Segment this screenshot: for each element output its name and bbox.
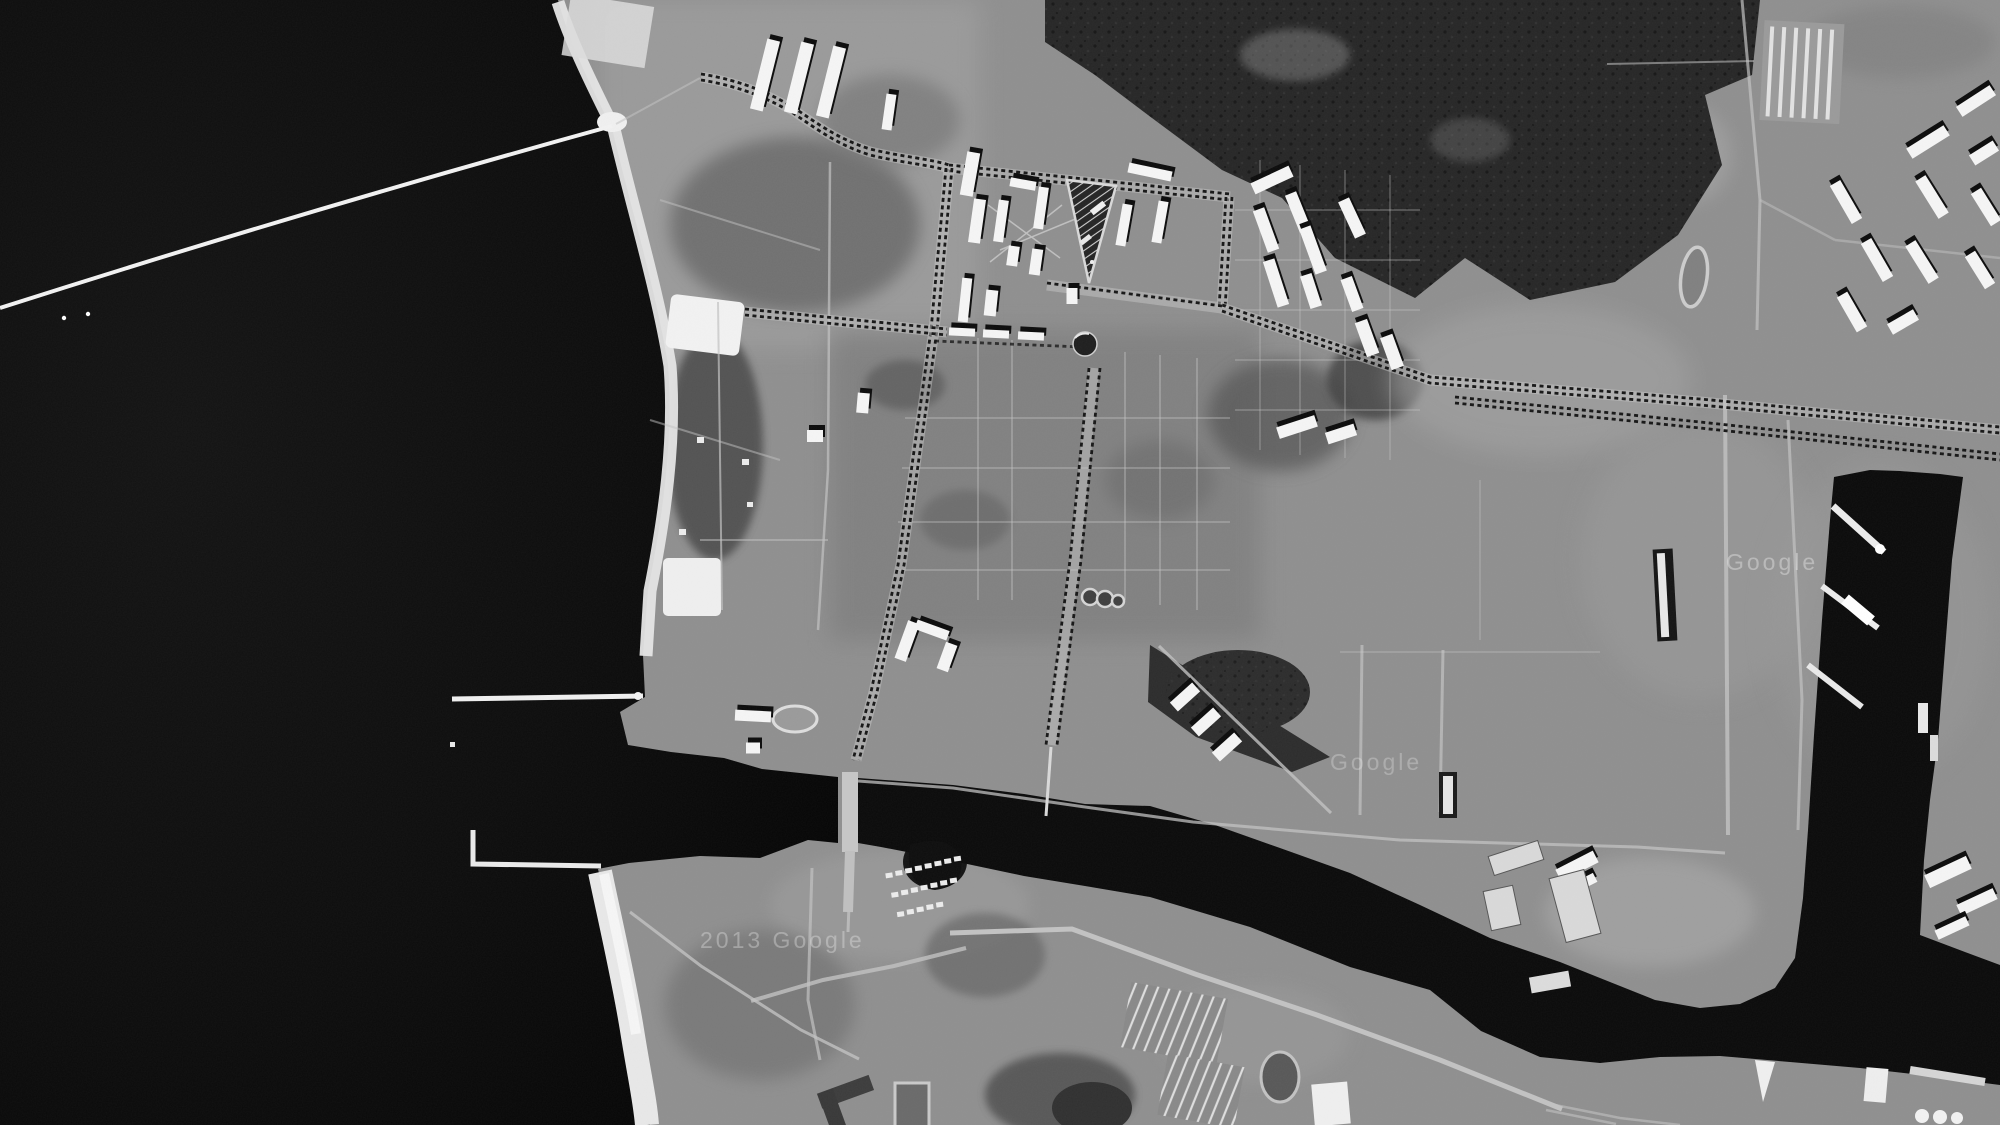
film-grain [0, 0, 2000, 1125]
aerial-photo: 2013 Google Google Google [0, 0, 2000, 1125]
aerial-photo-stage: 2013 Google Google Google [0, 0, 2000, 1125]
